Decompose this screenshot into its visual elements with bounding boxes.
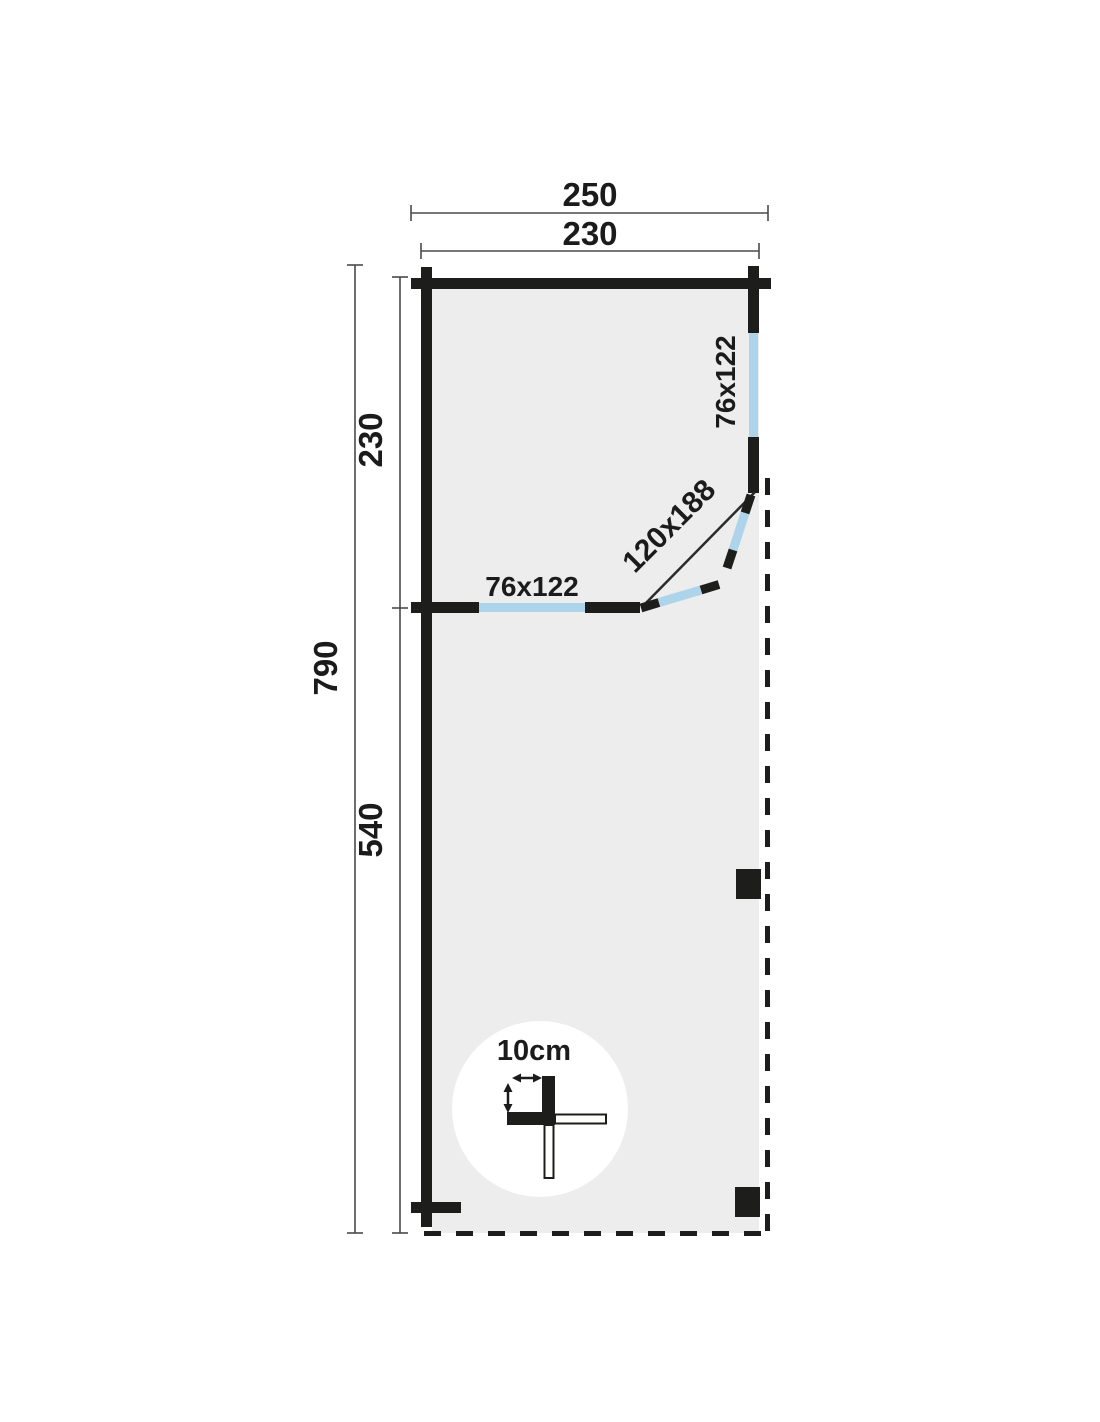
cross-log-horizontal-outline [555, 1115, 606, 1124]
label-wall-thickness: 10cm [497, 1035, 571, 1067]
cross-log-vertical-outline [545, 1125, 554, 1178]
post-corner [735, 1187, 760, 1217]
label-side-window-size: 76x122 [710, 335, 741, 428]
dim-label-cabin-depth: 230 [352, 412, 389, 467]
label-front-window-size: 76x122 [485, 571, 578, 602]
dim-line-depth-segments [392, 277, 408, 1233]
wall-front-right [585, 602, 640, 613]
wall-right-lower [748, 437, 759, 493]
wall-right-upper [748, 266, 759, 333]
dim-line-overall-depth [347, 265, 363, 1233]
wall-top [411, 278, 771, 289]
dim-label-overall-width: 250 [562, 176, 617, 213]
door-leaf-lower-hinge-cap [641, 603, 659, 609]
door-leaf-lower-end-cap [701, 585, 719, 591]
window-side [749, 333, 758, 437]
dim-label-overall-depth: 790 [307, 640, 344, 695]
dim-label-canopy-depth: 540 [352, 802, 389, 857]
dim-label-wall-length: 230 [562, 215, 617, 252]
window-front [479, 603, 585, 612]
floor-plan-drawing: 250 230 790 230 540 76x122 120x188 76x12… [0, 0, 1100, 1422]
cross-log-horizontal-solid [507, 1112, 555, 1125]
wall-left [421, 267, 432, 1227]
post-middle [736, 869, 761, 899]
wall-bottom-stub [411, 1202, 461, 1213]
door-leaf-upper-end-cap [727, 550, 733, 568]
wall-thickness-detail: 10cm [452, 1021, 628, 1197]
floor-plan-page: 250 230 790 230 540 76x122 120x188 76x12… [0, 0, 1100, 1422]
door-leaf-upper-hinge-cap [745, 495, 751, 513]
wall-front-left [411, 602, 479, 613]
